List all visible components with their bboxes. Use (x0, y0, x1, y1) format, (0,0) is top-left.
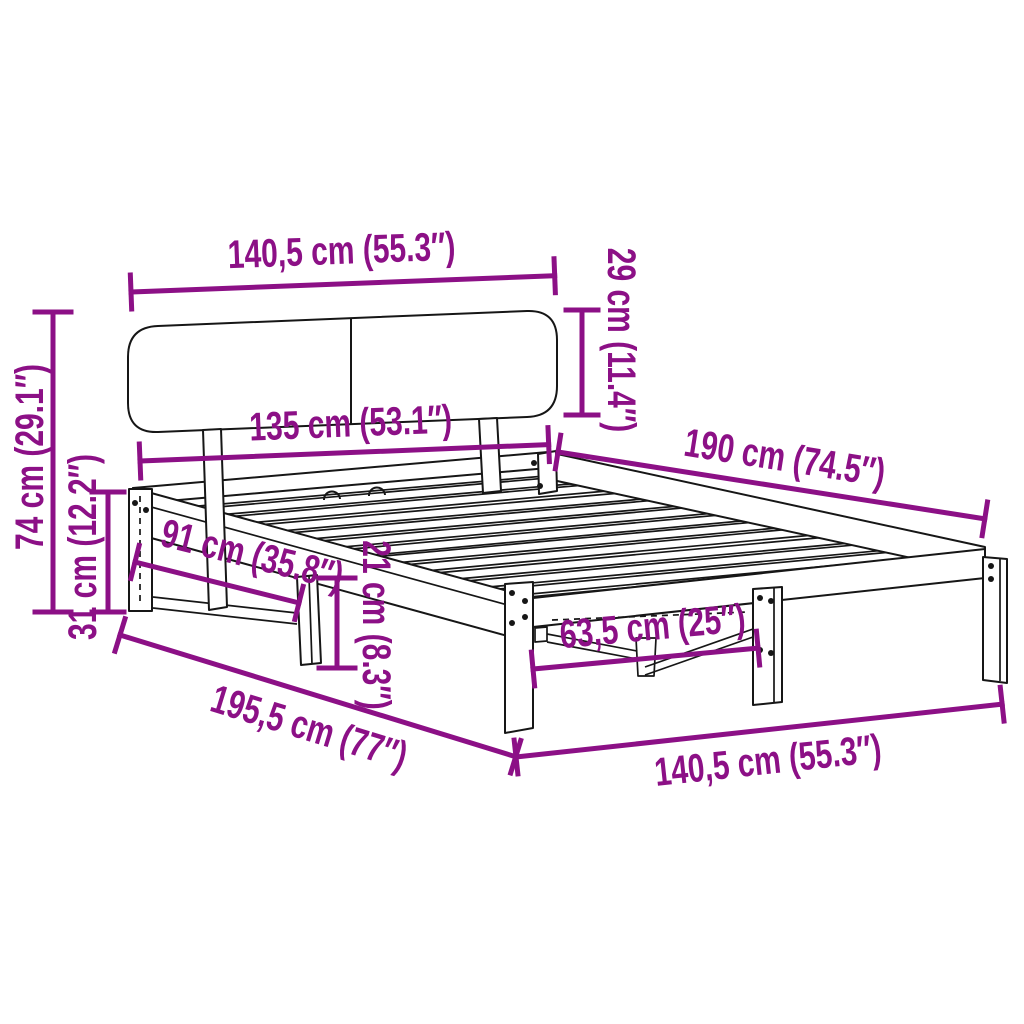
dim-base-height: 31 cm (12.2″) (61, 454, 124, 640)
dimension-end-cap (548, 428, 549, 462)
dim-foot-width: 140,5 cm (55.3″) (514, 687, 1008, 809)
rail-notch (535, 627, 547, 642)
screw (509, 620, 515, 626)
screw (988, 563, 994, 569)
screw (509, 590, 515, 596)
dimension-end-cap (139, 444, 140, 478)
screw (531, 460, 537, 466)
screw (768, 650, 774, 656)
diagram-canvas: 140,5 cm (55.3″) 29 cm (11.4″) 135 cm (5… (0, 0, 1024, 1024)
screw (768, 598, 774, 604)
dimension-end-cap (756, 631, 759, 665)
headboard-post-right (479, 418, 501, 493)
dimension-end-cap (1000, 687, 1004, 721)
dimension-label: 29 cm (11.4″) (599, 248, 643, 432)
screw (537, 483, 543, 489)
bed-frame-drawing (128, 311, 1007, 733)
dimension-end-cap (531, 652, 534, 686)
dimension-label: 190 cm (74.5″) (681, 421, 888, 496)
dim-headboard-height: 29 cm (11.4″) (566, 248, 643, 432)
dimension-label: 31 cm (12.2″) (61, 454, 105, 640)
dimension-end-cap (130, 275, 131, 309)
screw (522, 614, 528, 620)
dimension-label: 140,5 cm (55.3″) (227, 224, 456, 277)
screw (143, 507, 149, 513)
screw (522, 598, 528, 604)
dim-headboard-width: 140,5 cm (55.3″) (129, 221, 555, 309)
screw (132, 500, 138, 506)
leg-foot-right (983, 557, 1007, 683)
dimension-end-cap (554, 259, 555, 293)
dimension-end-cap (982, 502, 987, 536)
leg-foot-left (505, 582, 533, 733)
dimension-label: 74 cm (29.1″) (8, 364, 52, 550)
dimension-label: 135 cm (53.1″) (248, 397, 452, 449)
product-dimension-diagram: 140,5 cm (55.3″) 29 cm (11.4″) 135 cm (5… (0, 0, 1024, 1024)
screw (757, 595, 763, 601)
dimension-label: 21 cm (8.3″) (354, 540, 398, 709)
screw (988, 576, 994, 582)
dimension-line (131, 276, 555, 292)
